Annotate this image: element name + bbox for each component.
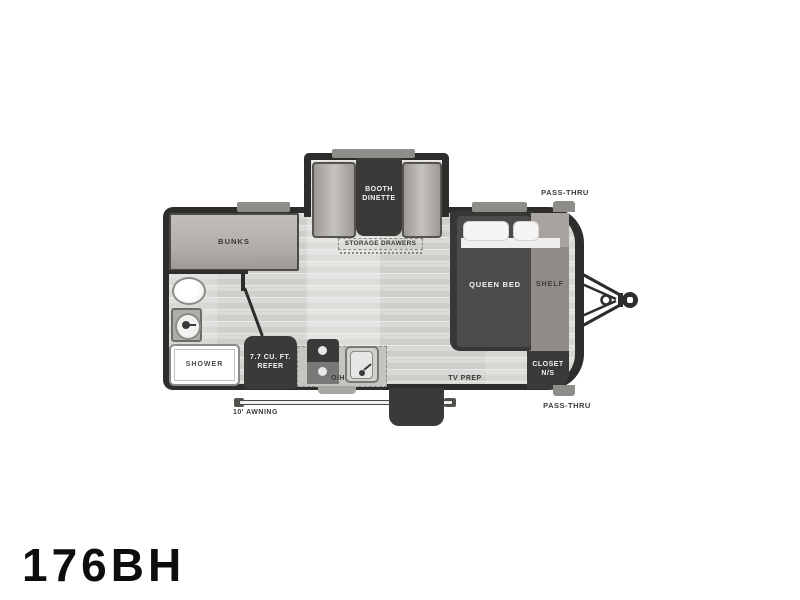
model-label: 176BH bbox=[22, 538, 185, 592]
queen-bed-label: QUEEN BED bbox=[460, 279, 530, 290]
storage-drawers: STORAGE DRAWERS bbox=[338, 238, 423, 250]
pass-thru-label-bottom: PASS-THRU bbox=[531, 401, 603, 411]
booth-dinette-table: BOOTH DINETTE bbox=[356, 154, 402, 236]
toilet-icon bbox=[172, 277, 206, 305]
window bbox=[332, 149, 415, 158]
dinette-bench-left bbox=[312, 162, 356, 238]
pass-thru-hatch-bottom bbox=[553, 385, 575, 396]
entry-step bbox=[318, 386, 356, 394]
pillow bbox=[513, 221, 539, 241]
entry-door bbox=[389, 388, 444, 426]
bunks: BUNKS bbox=[169, 213, 299, 271]
dinette-bench-right bbox=[402, 162, 442, 238]
pillow bbox=[463, 221, 509, 241]
faucet-handle bbox=[189, 324, 196, 326]
tv-prep-label: TV PREP bbox=[440, 374, 490, 384]
bathroom-sink-icon bbox=[171, 308, 202, 342]
shower: SHOWER bbox=[169, 344, 240, 386]
overhead-label: O/H bbox=[325, 374, 351, 384]
pass-thru-label-top: PASS-THRU bbox=[529, 188, 601, 198]
shelf-label: SHELF bbox=[531, 280, 569, 290]
hitch-icon bbox=[582, 274, 638, 326]
floorplan-canvas: BOOTH DINETTE STORAGE DRAWERS BUNKS SHOW… bbox=[0, 0, 800, 600]
storage-drawers-dots bbox=[340, 252, 422, 254]
closet: CLOSET N/S bbox=[527, 351, 569, 389]
bathroom-wall bbox=[166, 270, 248, 274]
window bbox=[237, 202, 290, 212]
awning-label: 10' AWNING bbox=[233, 408, 293, 418]
bathroom-wall-stub bbox=[241, 270, 245, 291]
pass-thru-hatch-top bbox=[553, 201, 575, 212]
burner-icon bbox=[318, 346, 327, 355]
window bbox=[472, 202, 527, 212]
refrigerator: 7.7 CU. FT. REFER bbox=[244, 336, 297, 389]
